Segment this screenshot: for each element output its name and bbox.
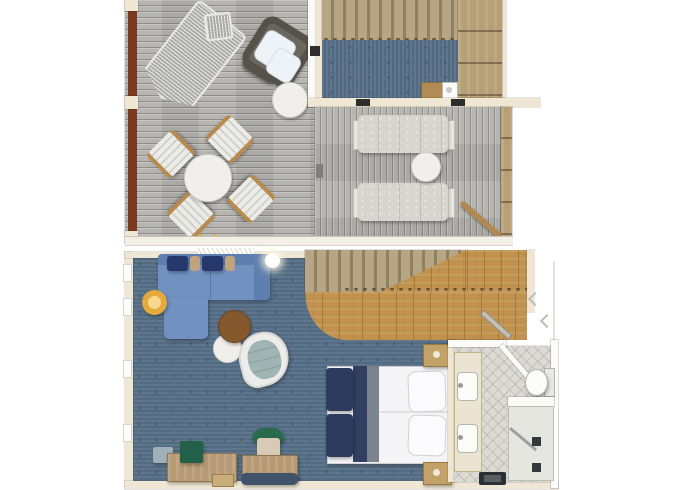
- upper-room-bottom-wall: [308, 98, 540, 107]
- bed-runner-stripe: [367, 366, 379, 462]
- stair-nosing: [343, 288, 530, 293]
- corridor-door-mark: [540, 314, 554, 328]
- shower-drain: [532, 463, 541, 472]
- lounger-frame: [447, 188, 455, 218]
- hammock-spreader-bar: [203, 11, 233, 41]
- window-mullion: [123, 360, 132, 378]
- deck-divider: [316, 164, 323, 178]
- bed-foot-cushion: [326, 368, 353, 411]
- lounger-frame: [447, 120, 455, 150]
- upper-stairs: [322, 0, 460, 40]
- deck-post: [125, 96, 138, 109]
- sofa-pillow: [167, 256, 188, 271]
- window-mullion: [123, 298, 132, 316]
- sink-basin: [446, 87, 452, 93]
- bed-foot-cushion: [326, 414, 353, 457]
- bench: [241, 473, 298, 485]
- deck-side-wall: [128, 108, 137, 232]
- toilet-partition-wall: [508, 397, 554, 406]
- sofa-chaise: [164, 298, 208, 339]
- bath-mat-inner: [484, 475, 501, 482]
- toilet: [525, 369, 548, 396]
- sun-lounger: [358, 183, 448, 221]
- deck-side-table: [272, 82, 308, 118]
- sliding-door-opening: [451, 99, 465, 106]
- faucet: [458, 383, 463, 388]
- bed-pillow: [407, 370, 446, 412]
- dining-table: [184, 154, 232, 202]
- sofa-pillow: [225, 256, 235, 271]
- stair-landing: [458, 0, 502, 98]
- sofa-cushion-seam: [210, 270, 211, 299]
- ceiling-light: [265, 253, 280, 268]
- vanity: [454, 352, 482, 472]
- floor-lamp-shade: [148, 296, 161, 309]
- deck-post: [125, 0, 138, 11]
- deck-edge-wood: [501, 107, 512, 237]
- window-mullion: [123, 264, 132, 282]
- bathroom-top-wall: [448, 340, 506, 347]
- storage-box: [180, 441, 203, 463]
- door-opening-marker: [310, 46, 320, 56]
- floor-plan: [0, 0, 680, 490]
- sun-lounger: [358, 115, 448, 153]
- nightstand-item: [433, 469, 440, 476]
- nightstand-item: [433, 351, 440, 358]
- lounger-table: [411, 152, 441, 182]
- faucet: [458, 435, 463, 440]
- sofa-pillow: [190, 256, 200, 271]
- upper-deck-rail: [125, 236, 513, 246]
- deck-side-wall: [128, 9, 137, 97]
- corridor-wall-line: [553, 262, 555, 340]
- bed-runner: [353, 366, 367, 462]
- sliding-door-opening: [356, 99, 370, 106]
- sofa-pillow: [202, 256, 223, 271]
- window-mullion: [123, 424, 132, 442]
- shower-drain: [532, 437, 541, 446]
- floor-item: [212, 474, 234, 487]
- bed-pillow: [407, 414, 446, 456]
